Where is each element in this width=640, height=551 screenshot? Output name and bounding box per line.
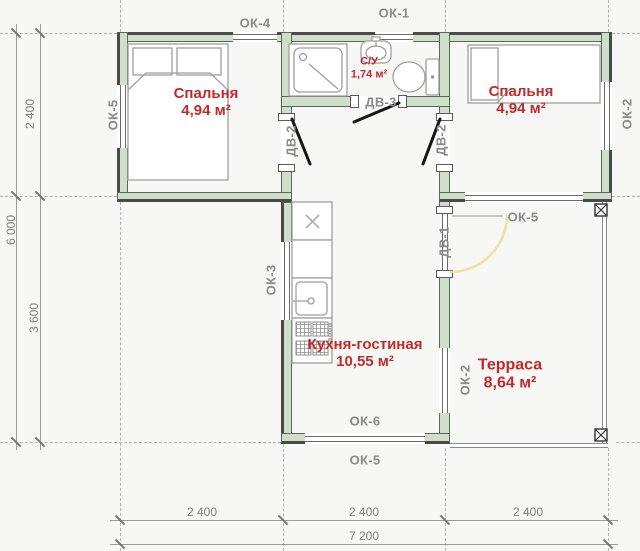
dim-line-left-inner <box>40 24 41 450</box>
room-area: 4,94 м² <box>489 100 554 117</box>
floor-plan: ОК-4 ОК-1 ОК-5 ОК-2 ДВ-3 ДВ-2 ДВ-2 ОК-5 … <box>0 0 640 551</box>
shower-icon <box>289 44 347 96</box>
room-name: Спальня <box>174 85 239 102</box>
room-area: 10,55 м² <box>308 353 423 370</box>
axis-line-row3-right <box>616 442 640 443</box>
window-ok6-glass <box>305 436 425 442</box>
door-jamb <box>398 95 407 108</box>
axis-line-col1-top <box>120 0 121 32</box>
window-ok5-inner-glass <box>465 195 583 201</box>
dimension-bottom-seg3: 2 400 <box>513 505 543 519</box>
wall-top <box>117 32 612 42</box>
room-area: 8,64 м² <box>478 375 542 393</box>
wall-kitchen-left <box>281 202 292 444</box>
dim-line-bottom-inner <box>110 520 618 521</box>
window-label-ok1: ОК-1 <box>379 6 410 21</box>
dimension-bottom-total: 7 200 <box>349 529 379 543</box>
window-ok1-glass <box>375 34 413 40</box>
axis-line-col2-top <box>283 0 284 32</box>
room-label-kitchen-living: Кухня-гостиная 10,55 м² <box>308 336 423 371</box>
room-label-bedroom-right: Спальня 4,94 м² <box>489 83 554 118</box>
door-jamb <box>436 270 453 278</box>
room-name: Кухня-гостиная <box>308 336 423 353</box>
window-label-ok5-inner: ОК-5 <box>508 210 539 225</box>
window-label-ok4: ОК-4 <box>240 16 271 31</box>
window-ok2-right-glass <box>604 82 610 150</box>
door-jamb <box>278 113 295 121</box>
room-area: 1,74 м² <box>351 68 387 81</box>
axis-line-row1-right <box>612 33 640 34</box>
window-label-ok5-bottom: ОК-5 <box>350 453 381 468</box>
window-label-ok3: ОК-3 <box>264 265 279 296</box>
kitchen-cabinet-icon <box>292 202 332 240</box>
kitchen-counter-icon <box>292 240 332 278</box>
window-ok2-kitchen-glass <box>442 348 448 413</box>
terrace-edge-right <box>602 202 607 448</box>
kitchen-sink-icon <box>292 278 332 318</box>
room-area: 4,94 м² <box>174 102 239 119</box>
door-jamb <box>436 164 453 172</box>
door-jamb <box>350 95 359 108</box>
room-name: Спальня <box>489 83 554 100</box>
door-jamb <box>436 113 453 121</box>
door-arc-dv1 <box>450 215 507 272</box>
dim-line-bottom-outer <box>110 544 618 545</box>
room-name: С/У <box>351 55 387 68</box>
dimension-bottom-seg1: 2 400 <box>187 505 217 519</box>
dimension-left-total: 6 000 <box>4 215 18 245</box>
dimension-left-lower: 3 600 <box>27 303 41 333</box>
axis-line-row2-right <box>612 196 640 197</box>
room-label-terrace: Терраса 8,64 м² <box>478 357 542 394</box>
window-label-ok2-right: ОК-2 <box>620 99 635 130</box>
door-label-dv3: ДВ-3 <box>365 95 396 110</box>
window-ok5-left-glass <box>120 85 126 148</box>
toilet-icon <box>393 59 439 95</box>
axis-line-col4-top <box>608 0 609 32</box>
door-label-dv2-left: ДВ-2 <box>284 125 299 156</box>
room-label-bedroom-left: Спальня 4,94 м² <box>174 85 239 120</box>
door-jamb <box>436 206 453 214</box>
door-label-dv1: ДВ-1 <box>437 226 452 257</box>
axis-line-col3-bottom <box>445 448 446 551</box>
axis-line-col2-bottom <box>283 444 284 551</box>
room-label-bathroom: С/У 1,74 м² <box>351 55 387 80</box>
window-ok4-glass <box>233 34 277 40</box>
window-ok3-glass <box>284 242 290 320</box>
axis-line-col3-top <box>445 0 446 32</box>
window-label-ok2-kitchen: ОК-2 <box>458 365 473 396</box>
door-label-dv2-right: ДВ-2 <box>434 124 449 155</box>
dimension-left-upper: 2 400 <box>23 99 37 129</box>
window-label-ok5-left: ОК-5 <box>106 100 121 131</box>
door-jamb <box>278 164 295 172</box>
axis-line-col1-bottom <box>120 202 121 551</box>
terrace-edge-bottom <box>450 443 608 448</box>
window-label-ok6: ОК-6 <box>350 414 381 429</box>
wall-bedroom-left-bottom <box>117 192 292 202</box>
room-name: Терраса <box>478 357 542 375</box>
axis-line-col4-bottom <box>608 448 609 551</box>
dimension-bottom-seg2: 2 400 <box>349 505 379 519</box>
